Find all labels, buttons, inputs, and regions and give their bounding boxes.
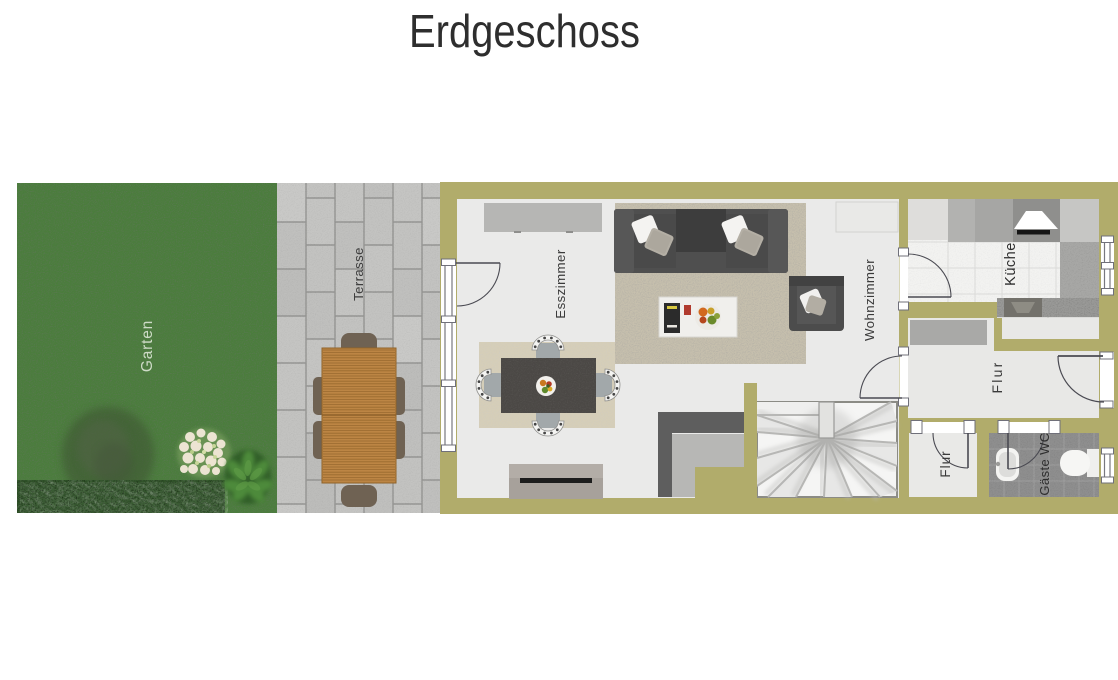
svg-text:Garten: Garten bbox=[139, 320, 156, 372]
svg-text:Küche: Küche bbox=[1003, 242, 1019, 286]
svg-text:Flur: Flur bbox=[989, 361, 1005, 394]
svg-text:Wohnzimmer: Wohnzimmer bbox=[862, 259, 877, 341]
svg-text:Erdgeschoss: Erdgeschoss bbox=[409, 5, 640, 57]
svg-text:Terrasse: Terrasse bbox=[351, 247, 366, 301]
svg-text:Flur: Flur bbox=[938, 450, 953, 477]
svg-text:Esszimmer: Esszimmer bbox=[553, 249, 568, 319]
svg-text:Gäste WC: Gäste WC bbox=[1037, 432, 1052, 495]
